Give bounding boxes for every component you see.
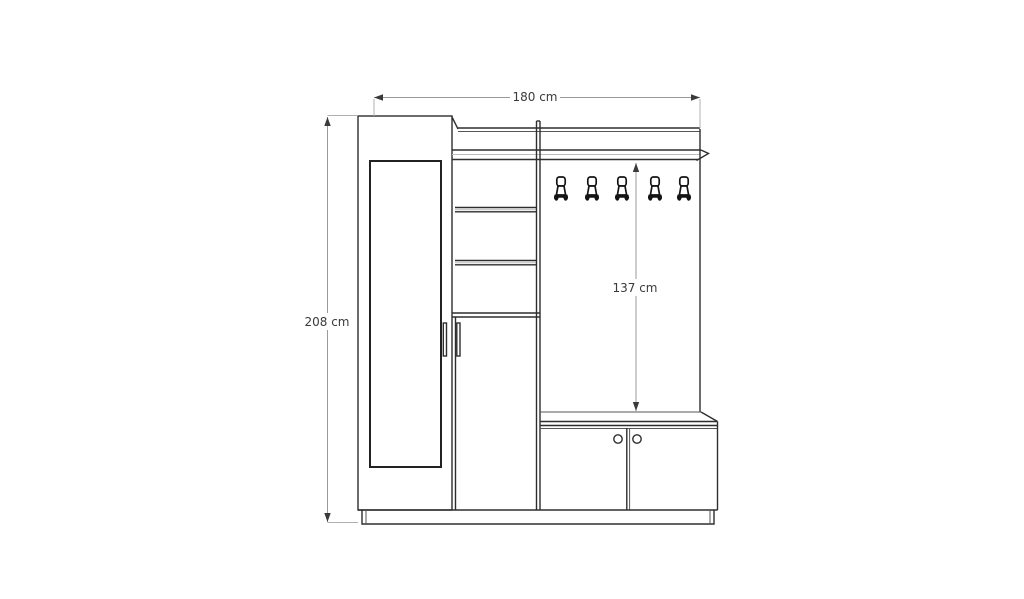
drawing-svg: 180 cm 208 cm 137 cm bbox=[0, 0, 1024, 599]
dimension-label-height: 208 cm bbox=[304, 315, 349, 329]
dimension-label-panel: 137 cm bbox=[612, 281, 657, 295]
divider-panel bbox=[537, 121, 541, 510]
shelf-column bbox=[452, 121, 709, 510]
coat-hook-icon bbox=[554, 177, 568, 201]
counter-top bbox=[452, 313, 540, 317]
plinth bbox=[358, 510, 718, 524]
shelf bbox=[455, 208, 536, 212]
mirror-panel bbox=[370, 161, 441, 467]
coat-hook-icon bbox=[585, 177, 599, 201]
coat-hook-icon bbox=[615, 177, 629, 201]
coat-hook-icon bbox=[677, 177, 691, 201]
wardrobe-door-handle bbox=[443, 323, 446, 356]
tall-cabinet-door bbox=[456, 317, 461, 510]
coat-panel bbox=[554, 129, 700, 412]
wardrobe-cabinet bbox=[358, 116, 458, 510]
bench-door-knob bbox=[633, 435, 641, 443]
shelf bbox=[455, 261, 536, 265]
furniture-technical-drawing: 180 cm 208 cm 137 cm bbox=[0, 0, 1024, 599]
dimension-total-height: 208 cm bbox=[302, 116, 358, 523]
top-shelf bbox=[452, 150, 709, 161]
dimension-label-width: 180 cm bbox=[512, 90, 557, 104]
coat-hook-icon bbox=[648, 177, 662, 201]
bench-door-knob bbox=[614, 435, 622, 443]
cabinet-door-handle bbox=[457, 323, 460, 356]
bench-cabinet bbox=[540, 412, 718, 510]
